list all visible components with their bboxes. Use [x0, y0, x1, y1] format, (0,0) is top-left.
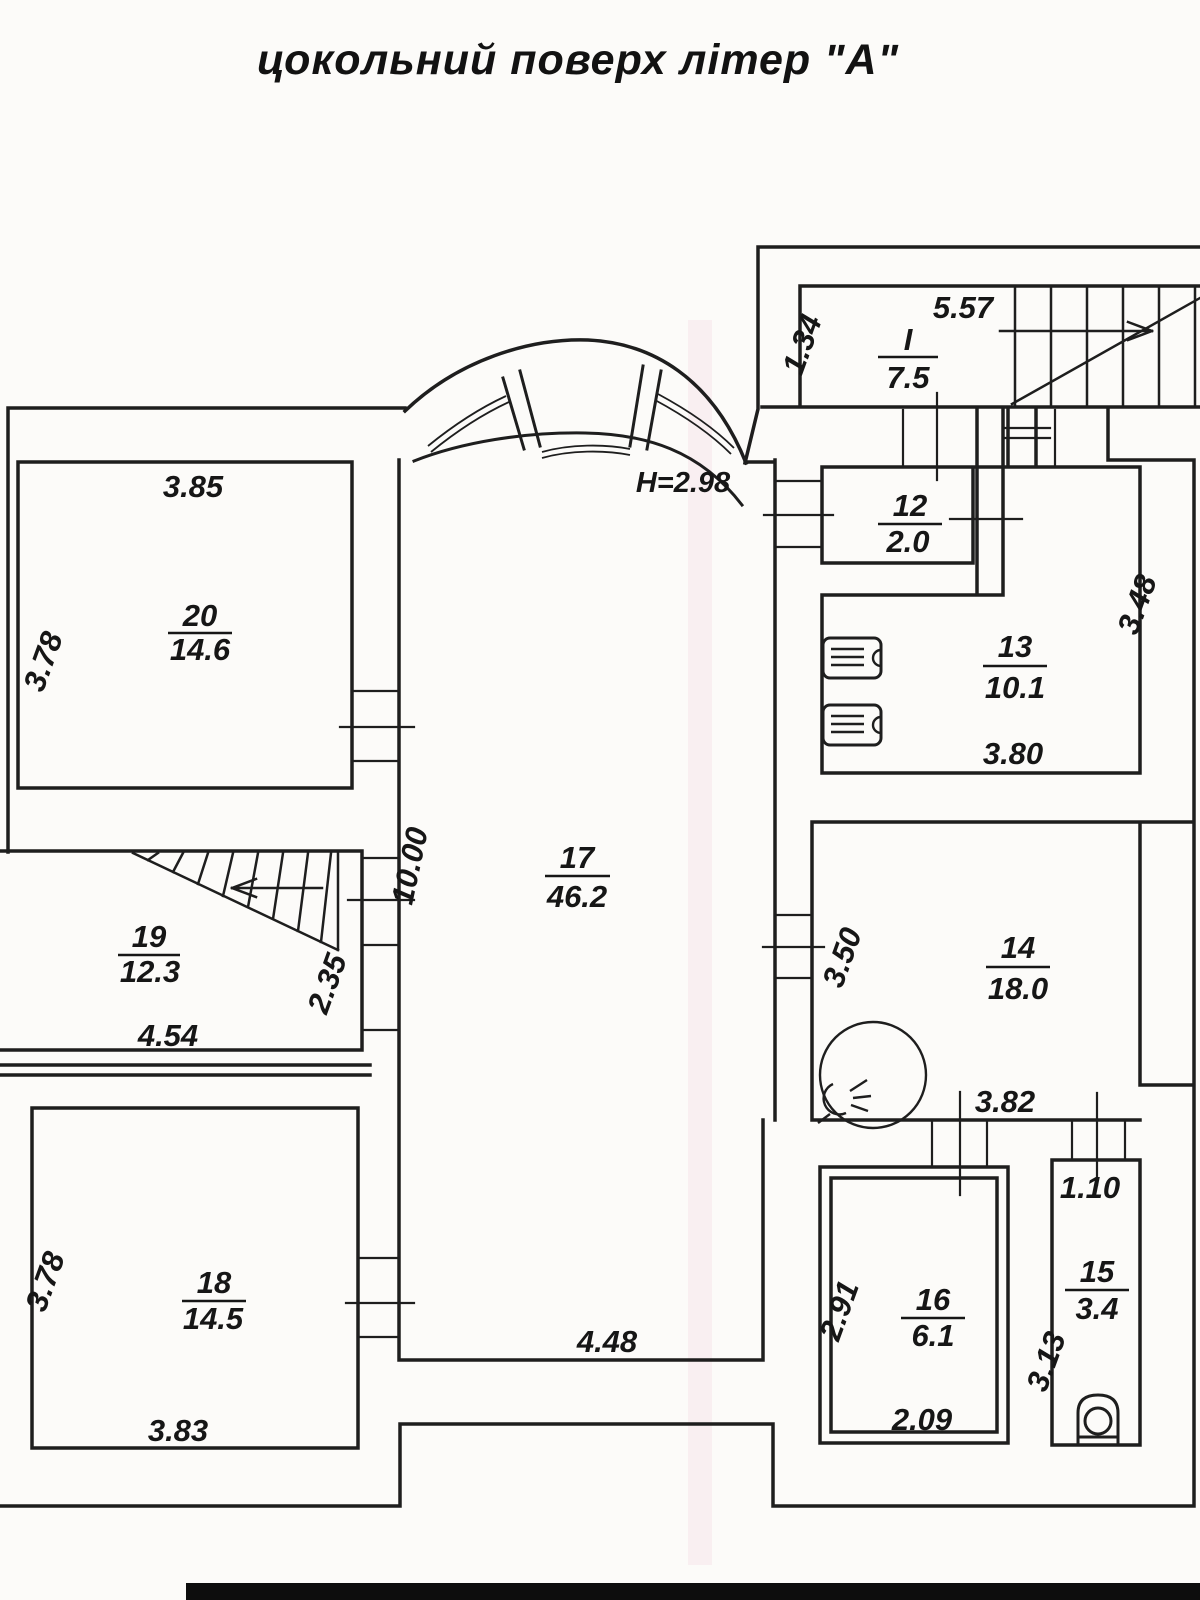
dim-room16-bottom: 2.09: [891, 1402, 953, 1437]
room-16-area: 6.1: [911, 1318, 954, 1353]
room-17-area: 46.2: [546, 879, 607, 914]
toilet-bowl-icon: [1085, 1408, 1111, 1434]
dim-room20-top: 3.85: [163, 469, 224, 504]
room-labels: 20 14.6 19 12.3 18 14.5 17 46.2 I 7.5 12…: [120, 322, 1119, 1353]
room-14-area: 18.0: [988, 971, 1048, 1006]
room-19-number: 19: [132, 919, 167, 954]
dim-roomI-left: 1.34: [775, 310, 829, 379]
scanned-floor-plan-page: цокольний поверх літер "А" 20 14.6 19: [0, 0, 1200, 1600]
room-17-number: 17: [560, 840, 596, 875]
room-16-number: 16: [916, 1282, 951, 1317]
room-I-number: I: [904, 322, 914, 357]
room-13-area: 10.1: [985, 670, 1045, 705]
round-fixture-icon: [820, 1022, 926, 1128]
dim-room18-bottom: 3.83: [148, 1413, 208, 1448]
ceiling-height-note: Н=2.98: [636, 467, 731, 499]
room-14-number: 14: [1001, 930, 1035, 965]
boiler-grille-icon: [831, 716, 864, 732]
room-I-area: 7.5: [886, 360, 930, 395]
room-12-number: 12: [893, 488, 927, 523]
dim-room19-bottom: 4.54: [137, 1018, 198, 1053]
dim-roomI-top: 5.57: [933, 290, 995, 325]
dim-room19-right: 2.35: [300, 948, 354, 1018]
dim-room13-bottom: 3.80: [983, 736, 1043, 771]
room-20-area: 14.6: [170, 632, 231, 667]
dim-room14-left: 3.50: [815, 923, 869, 992]
room-20-number: 20: [182, 598, 217, 633]
dim-room14-bottom: 3.82: [975, 1084, 1035, 1119]
dim-room15-top: 1.10: [1060, 1170, 1120, 1205]
dim-room17-left: 10.00: [385, 824, 435, 907]
scan-streak-artifact: [688, 320, 712, 1565]
dim-room17-bottom: 4.48: [576, 1324, 638, 1359]
floor-plan-drawing: цокольний поверх літер "А" 20 14.6 19: [0, 0, 1200, 1600]
room-18-number: 18: [197, 1265, 232, 1300]
room-12-area: 2.0: [885, 524, 929, 559]
stair-treads-upper: [1012, 288, 1200, 405]
room-15-area: 3.4: [1075, 1291, 1118, 1326]
room-13-number: 13: [998, 629, 1032, 664]
dim-room15-left: 3.13: [1019, 1327, 1073, 1396]
dim-room13-right: 3.48: [1110, 569, 1164, 638]
room-15-number: 15: [1080, 1254, 1115, 1289]
page-title: цокольний поверх літер "А": [257, 36, 899, 84]
staircase-upper: [1000, 288, 1200, 405]
dim-room18-left: 3.78: [18, 1246, 72, 1315]
fixtures-group: [818, 638, 1118, 1445]
room-18-area: 14.5: [183, 1301, 244, 1336]
scan-edge-artifact-bar: [186, 1583, 1200, 1600]
boiler-grille-icon: [831, 649, 864, 665]
room-19-area: 12.3: [120, 954, 180, 989]
dim-room20-left: 3.78: [16, 626, 70, 695]
